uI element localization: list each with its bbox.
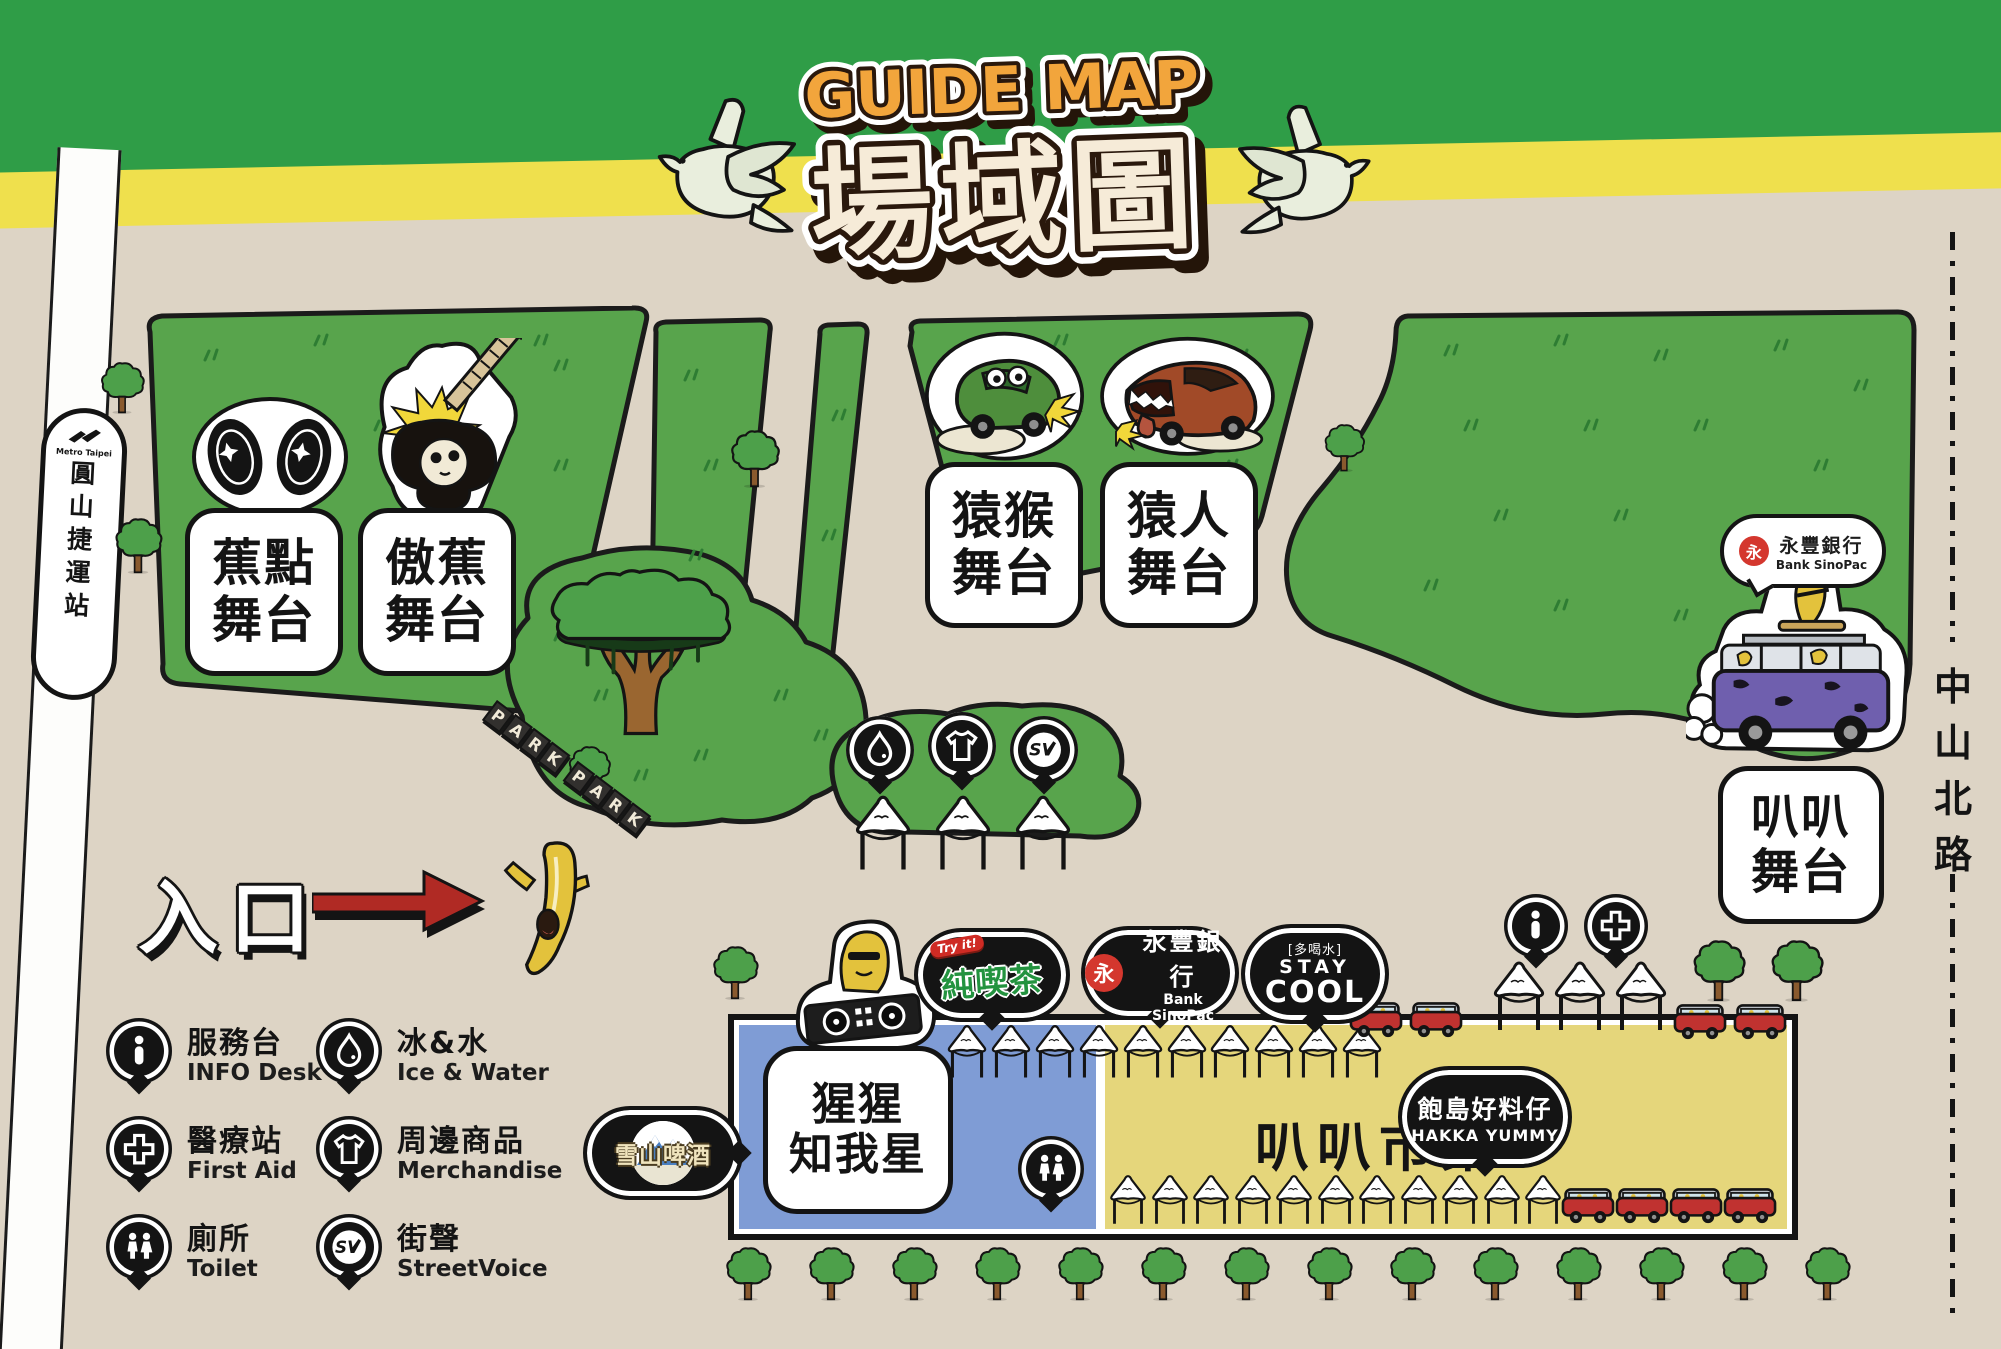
tent-icon (1314, 1174, 1358, 1228)
dove-icon (1218, 102, 1376, 240)
title-en: GUIDE MAP (803, 46, 1200, 133)
tree-icon (1553, 1247, 1603, 1301)
stage-label-jiaodian: 蕉點 舞台 (185, 508, 343, 676)
legend-toilet: 廁所 Toilet (106, 1214, 258, 1284)
tree-icon (889, 1247, 939, 1301)
merchandise-pin (928, 712, 996, 780)
legend-streetvoice: 街聲 StreetVoice (316, 1214, 548, 1284)
tent-icon (1164, 1016, 1210, 1090)
chun-cha-badge: Try it! 純喫茶 (914, 928, 1070, 1022)
stage-label-yuanhou: 猿猴 舞台 (925, 462, 1083, 628)
food-truck-icon (1668, 1186, 1724, 1224)
tent-icon (848, 794, 918, 876)
toilet-icon (106, 1214, 172, 1280)
street-centerline (1950, 874, 1955, 1320)
streetvoice-pin (1010, 716, 1078, 784)
tent-icon (928, 794, 998, 876)
first-aid-pin (1584, 894, 1648, 958)
legend-info: 服務台 INFO Desk (106, 1018, 322, 1088)
tree-icon (1802, 1247, 1852, 1301)
tent-icon (1207, 1016, 1253, 1090)
entrance-label: 入口 (138, 854, 322, 970)
hakka-zh: 飽島好料仔 (1417, 1090, 1552, 1126)
legend-zh: 冰&水 (397, 1027, 549, 1060)
bank-sinopac-logo-icon: 永 (1739, 536, 1769, 566)
tree-icon (1387, 1247, 1437, 1301)
stage-name: 舞台 (952, 545, 1056, 602)
try-it-ribbon: Try it! (929, 933, 985, 958)
tent-icon (1032, 1016, 1078, 1090)
tree-icon (1055, 1247, 1105, 1301)
stay-cool-line2: COOL (1265, 977, 1365, 1009)
sinopac-en: Bank SinoPac (1131, 992, 1235, 1024)
dove-icon (652, 96, 817, 238)
legend-merchandise: 周邊商品 Merchandise (316, 1116, 562, 1186)
legend-en: INFO Desk (187, 1060, 322, 1088)
tree-icon (112, 518, 164, 574)
legend-en: Ice & Water (397, 1060, 549, 1088)
legend-en: Toilet (187, 1256, 258, 1284)
green-monster-car-sticker-icon (922, 328, 1087, 470)
legend-zh: 廁所 (187, 1223, 258, 1256)
food-truck-icon (1408, 1000, 1464, 1038)
tree-icon (806, 1247, 856, 1301)
legend-zh: 周邊商品 (397, 1125, 562, 1158)
banana-mascot-icon (492, 830, 598, 984)
station-char: 站 (63, 588, 90, 622)
tent-icon (1189, 1174, 1233, 1228)
stage-name: 知我星 (789, 1130, 927, 1180)
food-truck-icon (1560, 1186, 1616, 1224)
entrance-arrow-icon (312, 862, 490, 950)
stage-label-yuanren: 猿人 舞台 (1100, 462, 1258, 628)
hakka-en: HAKKA YUMMY (1411, 1126, 1559, 1145)
tent-icon (1521, 1174, 1565, 1228)
tree-icon (98, 362, 146, 414)
tree-icon (1470, 1247, 1520, 1301)
metro-taipei-logo-icon (66, 426, 103, 448)
banyan-tree-icon (542, 556, 737, 751)
stage-name: 舞台 (1751, 845, 1851, 900)
tent-icon (1148, 1174, 1192, 1228)
street-name-char: 山 (1934, 712, 1972, 767)
sinopac-zh: 永豐銀行 (1779, 531, 1863, 558)
street-centerline (1950, 232, 1955, 642)
tent-icon (1251, 1016, 1297, 1090)
station-char: 運 (65, 555, 92, 589)
snow-beer-name: 雪山啤酒 (615, 1136, 711, 1170)
bank-sinopac-badge: 永 永豐銀行 Bank SinoPac (1081, 926, 1239, 1020)
hakka-yummy-badge: 飽島好料仔 HAKKA YUMMY (1398, 1066, 1572, 1168)
tree-icon (1690, 940, 1747, 1002)
tent-icon (1076, 1016, 1122, 1090)
street-name-char: 北 (1934, 768, 1972, 823)
stage-name: 叭叭 (1751, 790, 1851, 845)
stage-name: 傲蕉 (385, 535, 489, 592)
tent-icon (1008, 794, 1078, 876)
speakers-sticker-icon (190, 395, 350, 520)
stage-name: 舞台 (212, 592, 316, 649)
tree-icon (1719, 1247, 1769, 1301)
streetvoice-sv-icon (316, 1214, 382, 1280)
legend-ice-water: 冰&水 Ice & Water (316, 1018, 549, 1088)
tree-icon (728, 430, 781, 488)
legend-zh: 街聲 (397, 1223, 548, 1256)
street-name-char: 路 (1934, 824, 1972, 879)
page-title: GUIDE MAP GUIDE MAP GUIDE MAP 場域圖 場域圖 場域… (751, 10, 1250, 297)
tent-icon (1488, 960, 1550, 1036)
snow-beer-badge: 雪山啤酒 (583, 1106, 743, 1200)
stage-label-xingxing: 猩猩 知我星 (763, 1046, 953, 1214)
station-char: 圓 (70, 457, 97, 491)
sinopac-mark: 永 (1746, 539, 1762, 563)
bank-sinopac-logo-icon: 永 (1085, 954, 1123, 992)
sinopac-mark: 永 (1094, 958, 1115, 988)
legend-en: Merchandise (397, 1158, 562, 1186)
stage-name: 舞台 (385, 592, 489, 649)
toilet-pin (1018, 1136, 1084, 1202)
food-truck-icon (1722, 1186, 1778, 1224)
stage-name: 猿猴 (952, 488, 1056, 545)
stage-label-aojiao: 傲蕉 舞台 (358, 508, 516, 676)
tent-icon (1355, 1174, 1399, 1228)
guide-map: SV M (0, 0, 2001, 1349)
stay-cool-badge: [多喝水] STAY COOL (1241, 924, 1389, 1024)
sinopac-zh: 永豐銀行 (1131, 922, 1235, 992)
tent-icon (1397, 1174, 1441, 1228)
tent-icon (1549, 960, 1611, 1036)
info-icon (106, 1018, 172, 1084)
legend-first-aid: 醫療站 First Aid (106, 1116, 297, 1186)
stage-name: 猩猩 (812, 1080, 904, 1130)
legend-zh: 服務台 (187, 1027, 322, 1060)
legend-en: First Aid (187, 1158, 297, 1186)
sinopac-en: Bank SinoPac (1776, 558, 1867, 572)
first-aid-cross-icon (106, 1116, 172, 1182)
tent-icon (1610, 960, 1672, 1036)
skull-guitar-sticker-icon (362, 338, 522, 526)
tent-icon (1480, 1174, 1524, 1228)
tree-icon (972, 1247, 1022, 1301)
tree-icon (710, 946, 760, 1000)
stage-name: 舞台 (1127, 545, 1231, 602)
tree-icon (1322, 424, 1366, 472)
stage-name: 蕉點 (212, 535, 316, 592)
street-name-char: 中 (1934, 656, 1972, 711)
tree-icon (723, 1247, 773, 1301)
tent-icon (1231, 1174, 1275, 1228)
tent-icon (1272, 1174, 1316, 1228)
tree-icon (1636, 1247, 1686, 1301)
stage-label-baba: 叭叭 舞台 (1718, 766, 1884, 924)
water-drop-icon (316, 1018, 382, 1084)
stage-name: 猿人 (1127, 488, 1231, 545)
tent-icon (1438, 1174, 1482, 1228)
food-truck-icon (1614, 1186, 1670, 1224)
tree-icon (1304, 1247, 1354, 1301)
title-zh: 場域圖 (808, 123, 1203, 279)
sinopac-bubble: 永 永豐銀行 Bank SinoPac (1720, 514, 1886, 588)
tent-icon (1106, 1174, 1150, 1228)
station-char: 捷 (66, 522, 93, 556)
legend-zh: 醫療站 (187, 1125, 297, 1158)
tree-icon (1138, 1247, 1188, 1301)
red-monster-car-sticker-icon (1095, 335, 1280, 465)
ice-water-pin (846, 716, 914, 784)
legend-en: StreetVoice (397, 1256, 548, 1284)
tree-icon (1221, 1247, 1271, 1301)
chun-cha-name: 純喫茶 (939, 953, 1044, 1008)
food-truck-icon (1672, 1002, 1728, 1040)
info-desk-pin (1504, 894, 1568, 958)
tree-icon (1768, 940, 1825, 1002)
tshirt-icon (316, 1116, 382, 1182)
station-char: 山 (68, 489, 95, 523)
food-truck-icon (1732, 1002, 1788, 1040)
